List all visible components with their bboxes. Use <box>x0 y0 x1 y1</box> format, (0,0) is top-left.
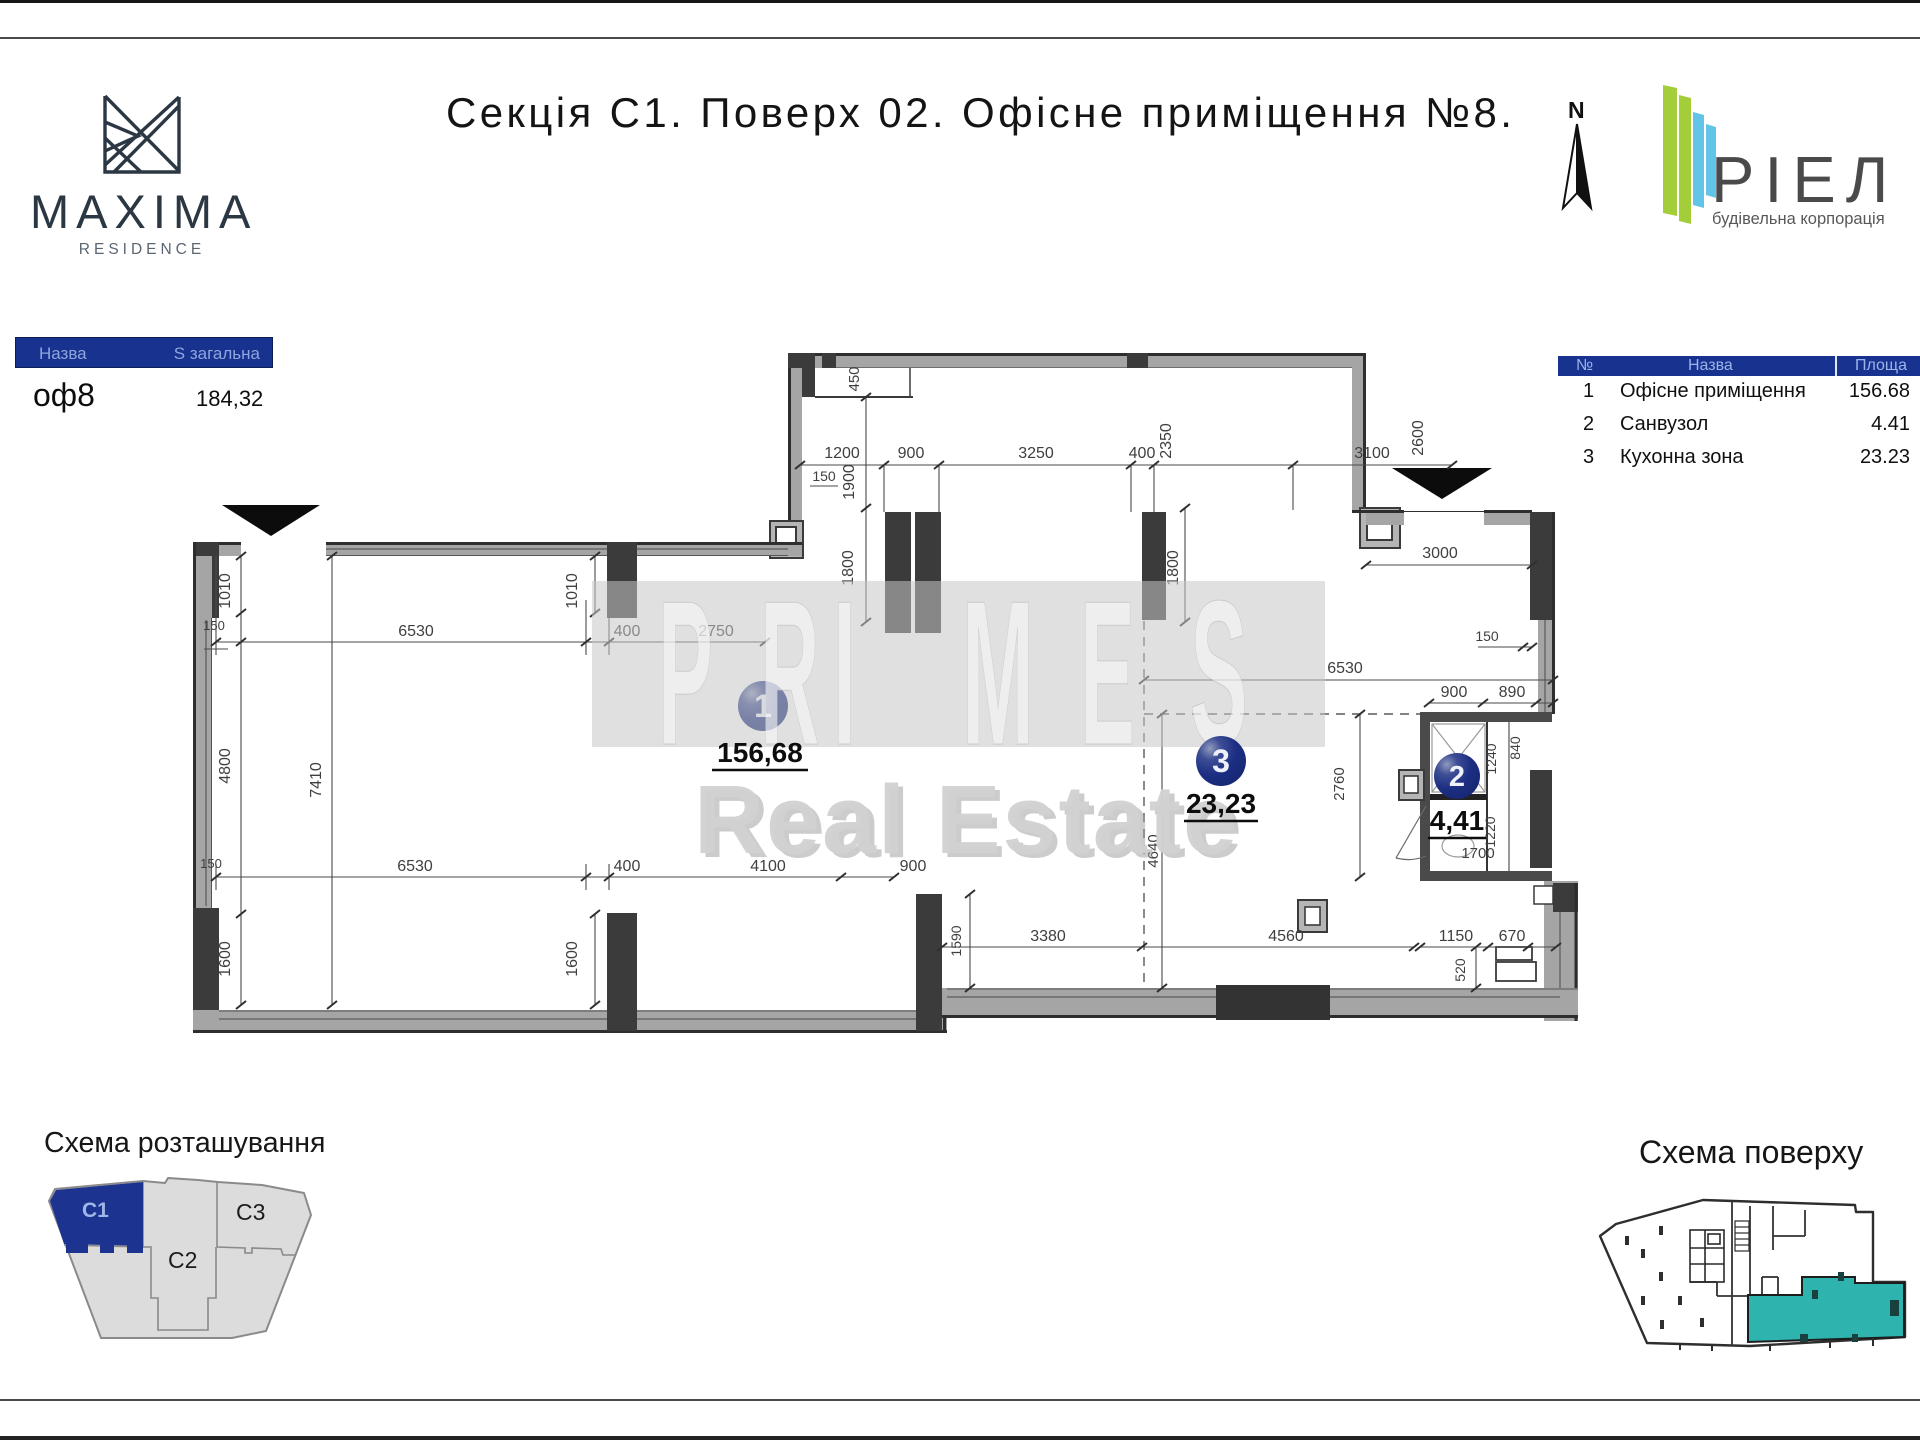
svg-text:будівельна корпорація: будівельна корпорація <box>1712 210 1885 228</box>
svg-text:150: 150 <box>203 618 225 633</box>
svg-text:400: 400 <box>1129 445 1156 462</box>
svg-text:1200: 1200 <box>824 445 860 462</box>
svg-text:150: 150 <box>812 468 836 484</box>
svg-text:400: 400 <box>614 858 641 875</box>
svg-text:1010: 1010 <box>217 573 234 609</box>
svg-text:6530: 6530 <box>397 858 433 875</box>
svg-text:2760: 2760 <box>1331 767 1348 800</box>
svg-text:840: 840 <box>1507 736 1523 760</box>
svg-text:2: 2 <box>1449 761 1465 793</box>
svg-text:C3: C3 <box>236 1199 265 1225</box>
svg-text:1220: 1220 <box>1482 816 1498 847</box>
svg-text:670: 670 <box>1499 928 1526 945</box>
svg-text:1240: 1240 <box>1483 743 1499 774</box>
svg-text:6530: 6530 <box>398 623 434 640</box>
svg-text:1590: 1590 <box>948 925 964 956</box>
svg-text:4800: 4800 <box>217 748 234 784</box>
svg-text:2600: 2600 <box>1410 420 1427 456</box>
svg-text:2350: 2350 <box>1158 423 1175 459</box>
svg-text:C2: C2 <box>168 1247 197 1273</box>
svg-text:890: 890 <box>1499 684 1526 701</box>
svg-text:3000: 3000 <box>1422 545 1458 562</box>
svg-text:1150: 1150 <box>1439 928 1474 945</box>
svg-text:150: 150 <box>1475 628 1499 644</box>
svg-text:900: 900 <box>898 445 925 462</box>
svg-text:РІЕЛ: РІЕЛ <box>1711 143 1895 216</box>
svg-text:3100: 3100 <box>1354 445 1390 462</box>
svg-text:M: M <box>962 559 1034 788</box>
svg-text:1010: 1010 <box>564 573 581 609</box>
svg-text:6530: 6530 <box>1327 660 1363 677</box>
svg-text:P: P <box>658 559 713 789</box>
svg-text:C1: C1 <box>82 1199 109 1222</box>
svg-text:N: N <box>1568 97 1585 123</box>
svg-text:7410: 7410 <box>308 762 325 798</box>
svg-text:156,68: 156,68 <box>717 737 803 768</box>
svg-text:I: I <box>833 559 856 789</box>
svg-text:450: 450 <box>846 366 863 391</box>
svg-text:1800: 1800 <box>1165 550 1182 586</box>
svg-text:900: 900 <box>1441 684 1468 701</box>
svg-text:150: 150 <box>200 856 222 871</box>
svg-text:4,41: 4,41 <box>1430 805 1485 836</box>
svg-text:1600: 1600 <box>564 941 581 977</box>
svg-text:1900: 1900 <box>841 464 858 500</box>
svg-text:3250: 3250 <box>1018 445 1054 462</box>
svg-text:1600: 1600 <box>217 941 234 977</box>
svg-text:23,23: 23,23 <box>1186 788 1256 819</box>
svg-text:520: 520 <box>1452 958 1468 982</box>
svg-text:3380: 3380 <box>1030 928 1066 945</box>
svg-text:Real Estate: Real Estate <box>694 765 1239 874</box>
svg-text:4560: 4560 <box>1268 928 1304 945</box>
svg-text:E: E <box>1080 559 1135 789</box>
